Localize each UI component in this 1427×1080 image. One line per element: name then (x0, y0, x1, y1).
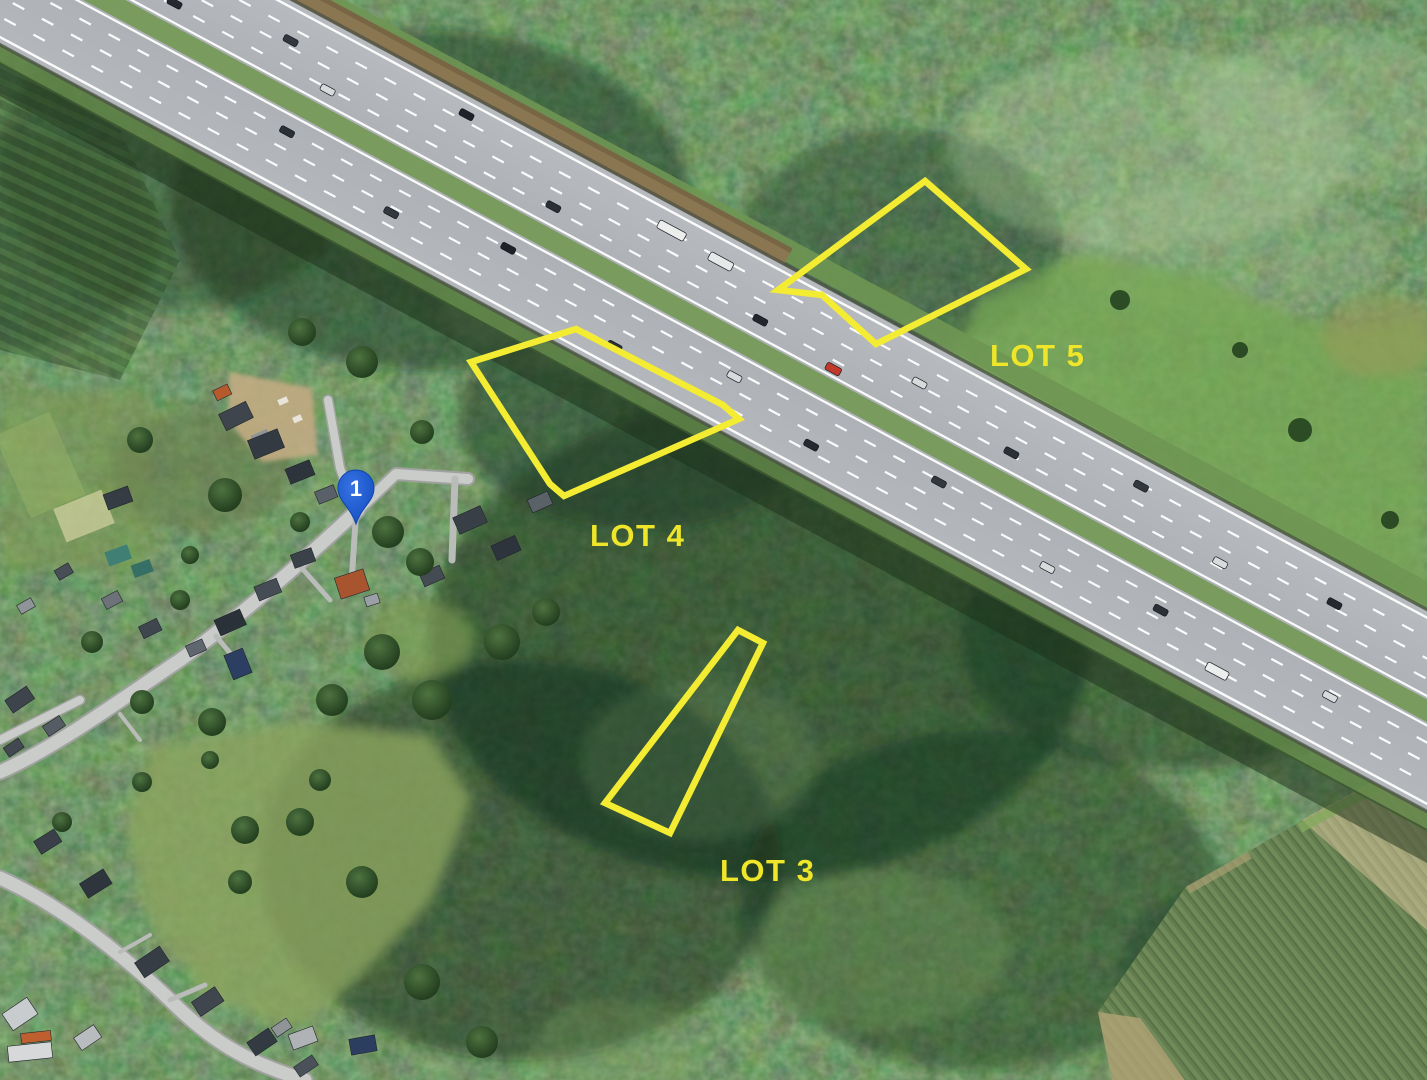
lot4-label: LOT 4 (590, 518, 685, 553)
lot5-label: LOT 5 (990, 338, 1085, 373)
marker-number: 1 (350, 476, 362, 501)
lot3-label: LOT 3 (720, 853, 815, 888)
satellite-basemap: LOT 5 LOT 4 LOT 3 1 (0, 0, 1427, 1080)
map-viewport: LOT 5 LOT 4 LOT 3 1 (0, 0, 1427, 1080)
